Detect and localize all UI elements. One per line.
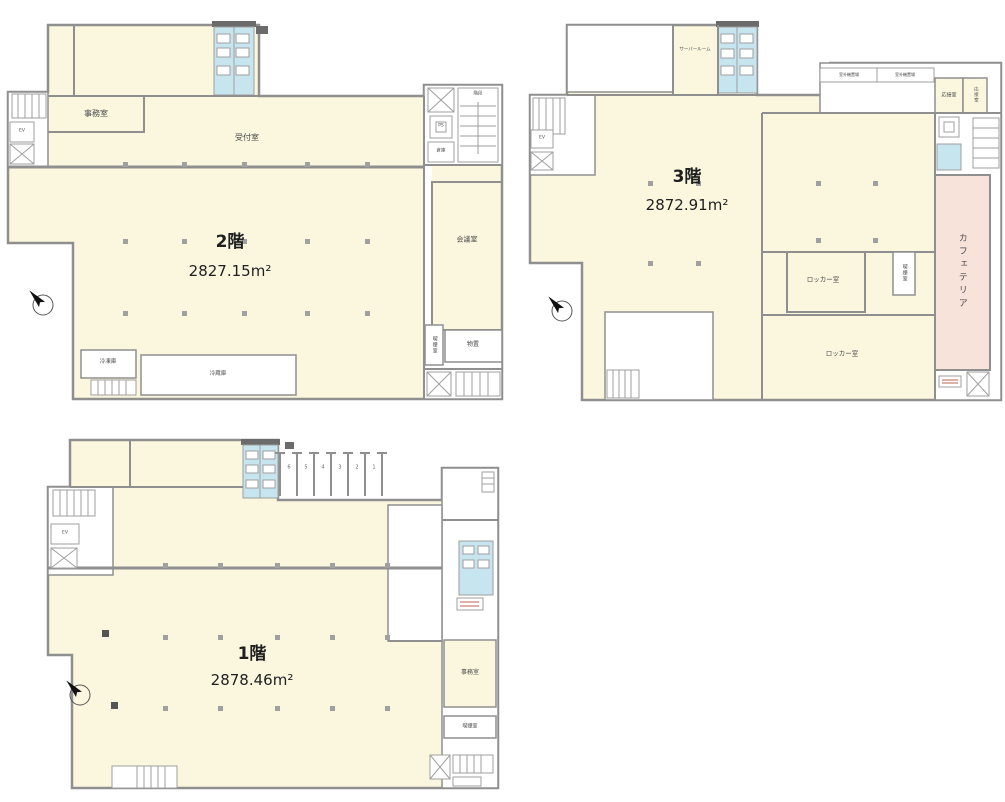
north-arrow-icon xyxy=(545,294,572,321)
floor-title-2f: 2階 xyxy=(216,234,245,252)
stairs-icon xyxy=(458,88,498,162)
berth-number-3: 3 xyxy=(338,465,341,470)
room-label-storage: 物置 xyxy=(467,342,479,348)
elevator-shaft-icon xyxy=(428,88,454,112)
berth-number-6: 6 xyxy=(287,465,290,470)
floor-area-3f: 2872.91m² xyxy=(646,198,729,214)
room-label-office: 事務室 xyxy=(84,110,108,118)
floor-plan-3f-drawing xyxy=(527,14,1005,414)
floor-plan-1f-drawing xyxy=(45,428,520,800)
elevator-shaft-icon xyxy=(427,372,451,396)
floor-title-3f: 3階 xyxy=(673,169,702,187)
room-label-elevator: EV xyxy=(539,137,545,142)
elevator-shaft-icon xyxy=(51,548,77,568)
room-label-stairs: 階段 xyxy=(474,93,483,98)
room-label-outdoor-unit-2: 室外機置場 xyxy=(895,73,915,77)
room-label-refrigerator: 冷蔵庫 xyxy=(210,372,227,378)
stairs-icon xyxy=(12,94,46,118)
room-label-office: 事務室 xyxy=(461,670,479,676)
stairs-icon xyxy=(456,372,500,396)
stairs-icon xyxy=(91,380,136,395)
elevator-shaft-icon xyxy=(531,152,553,170)
room-label-cafeteria: カフェテリア xyxy=(956,233,965,311)
elevator-shaft-icon xyxy=(430,755,450,779)
floor-plan-3f: 3階 2872.91m² サーバールーム 室外機置場 室外機置場 応接室 応接室… xyxy=(527,14,1005,414)
stairs-icon xyxy=(53,490,95,516)
stairs-icon xyxy=(973,118,999,168)
floor-plan-1f: 1階 2878.46m² 事務室 喫煙室 EV 6 5 4 3 2 1 xyxy=(45,428,520,800)
floor-area-1f: 2878.46m² xyxy=(211,673,294,689)
room-label-meeting: 会議室 xyxy=(457,236,478,243)
room-label-elevator: EV xyxy=(19,130,25,135)
berth-number-5: 5 xyxy=(304,465,307,470)
room-label-outdoor-unit-1: 室外機置場 xyxy=(839,73,859,77)
room-label-reception: 受付室 xyxy=(235,134,259,142)
room-label-server-room: サーバールーム xyxy=(679,49,710,54)
stairs-icon xyxy=(607,370,639,398)
stairs-icon xyxy=(533,98,565,134)
room-label-reception-room-2: 応接室 xyxy=(973,87,978,104)
room-label-smoking: 喫煙室 xyxy=(431,336,436,354)
room-label-reception-room-1: 応接室 xyxy=(941,93,956,98)
berth-number-2: 2 xyxy=(355,465,358,470)
room-label-pipe-space: PS xyxy=(438,125,444,130)
truck-berth-dividers xyxy=(275,453,387,496)
berth-number-1: 1 xyxy=(372,465,375,470)
room-label-elevator: EV xyxy=(62,532,68,537)
elevator-shaft-icon xyxy=(10,144,34,164)
toilet-block-icon xyxy=(241,439,294,498)
room-label-smoking: 喫煙室 xyxy=(901,264,906,282)
floor-area-2f: 2827.15m² xyxy=(189,264,272,280)
stairs-icon xyxy=(453,755,493,773)
berth-number-4: 4 xyxy=(321,465,324,470)
floor-plan-2f: 2階 2827.15m² 事務室 受付室 会議室 冷凍庫 冷蔵庫 物置 喫煙室 … xyxy=(4,14,506,404)
toilet-block-icon xyxy=(716,21,759,93)
room-label-smoking: 喫煙室 xyxy=(462,724,477,729)
floor-plan-sheet: { "page": {"background": "#ffffff"}, "co… xyxy=(0,0,1005,802)
floor-title-1f: 1階 xyxy=(238,646,267,664)
room-label-locker-lower: ロッカー室 xyxy=(826,351,859,358)
room-label-freezer: 冷凍庫 xyxy=(100,360,117,366)
north-arrow-icon xyxy=(26,288,53,315)
room-label-storage-small: 倉庫 xyxy=(437,150,446,155)
stairs-icon xyxy=(137,766,177,788)
elevator-shaft-icon xyxy=(967,372,989,396)
room-label-locker-upper: ロッカー室 xyxy=(807,277,840,284)
